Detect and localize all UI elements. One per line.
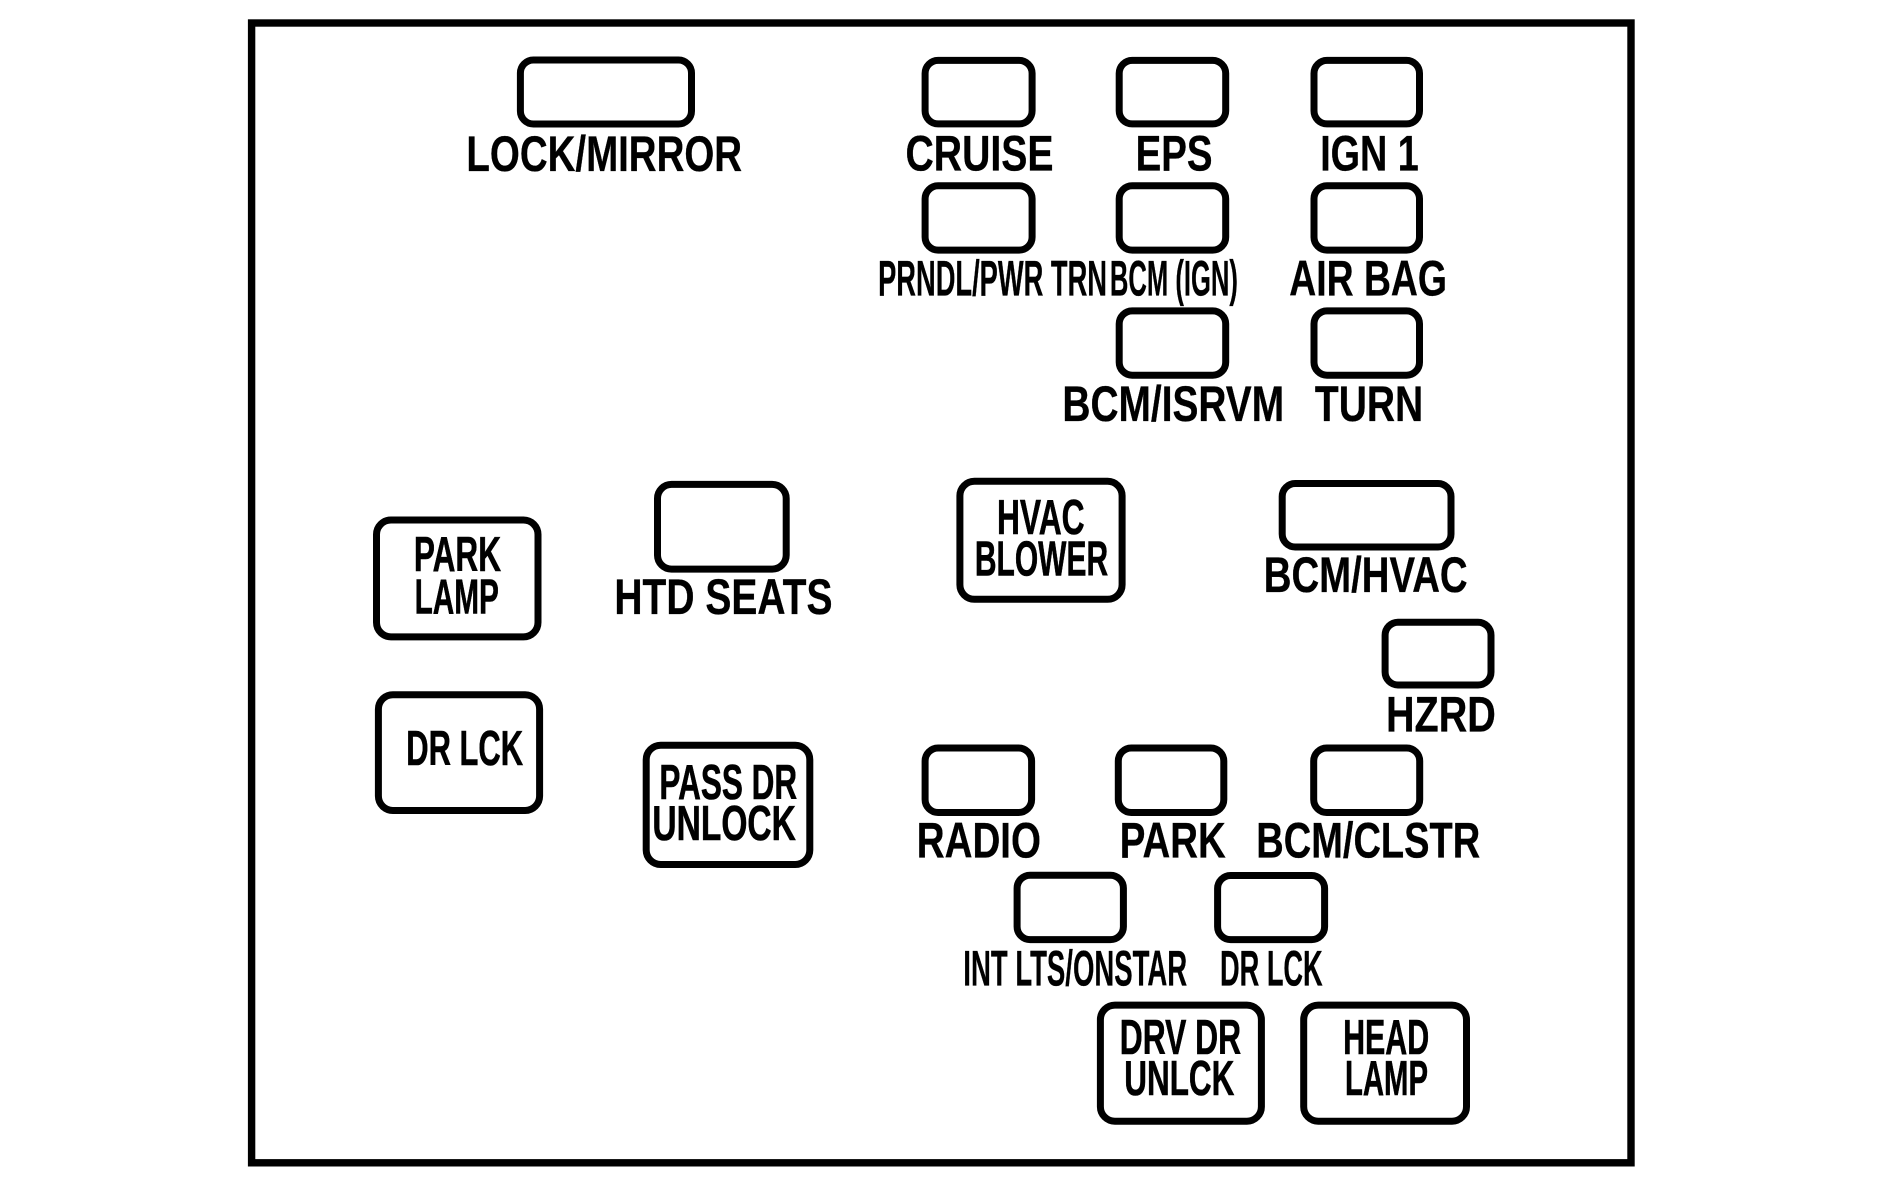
svg-text:EPS: EPS bbox=[1136, 126, 1213, 182]
svg-text:TURN: TURN bbox=[1315, 376, 1423, 432]
svg-text:BCM/CLSTR: BCM/CLSTR bbox=[1256, 813, 1480, 869]
svg-text:LAMP: LAMP bbox=[1345, 1052, 1428, 1106]
svg-text:LAMP: LAMP bbox=[415, 570, 499, 624]
svg-text:RADIO: RADIO bbox=[917, 813, 1041, 869]
svg-text:LOCK/MIRROR: LOCK/MIRROR bbox=[466, 126, 742, 182]
svg-text:HTD SEATS: HTD SEATS bbox=[614, 569, 832, 625]
svg-text:DR LCK: DR LCK bbox=[406, 722, 523, 776]
svg-text:UNLOCK: UNLOCK bbox=[652, 797, 796, 851]
svg-text:CRUISE: CRUISE bbox=[906, 126, 1054, 182]
svg-text:HZRD: HZRD bbox=[1386, 686, 1496, 742]
svg-text:BCM/HVAC: BCM/HVAC bbox=[1264, 547, 1468, 603]
svg-text:AIR BAG: AIR BAG bbox=[1289, 251, 1447, 307]
svg-text:BCM/ISRVM: BCM/ISRVM bbox=[1062, 376, 1284, 432]
svg-text:BLOWER: BLOWER bbox=[975, 533, 1108, 587]
svg-text:PRNDL/PWR TRN: PRNDL/PWR TRN bbox=[878, 251, 1107, 307]
svg-text:BCM (IGN): BCM (IGN) bbox=[1110, 251, 1238, 307]
svg-text:PARK: PARK bbox=[1120, 813, 1226, 869]
svg-text:UNLCK: UNLCK bbox=[1124, 1052, 1234, 1106]
svg-text:INT LTS/ONSTAR: INT LTS/ONSTAR bbox=[963, 940, 1187, 996]
svg-text:DR LCK: DR LCK bbox=[1220, 940, 1323, 996]
svg-text:IGN 1: IGN 1 bbox=[1320, 126, 1419, 182]
